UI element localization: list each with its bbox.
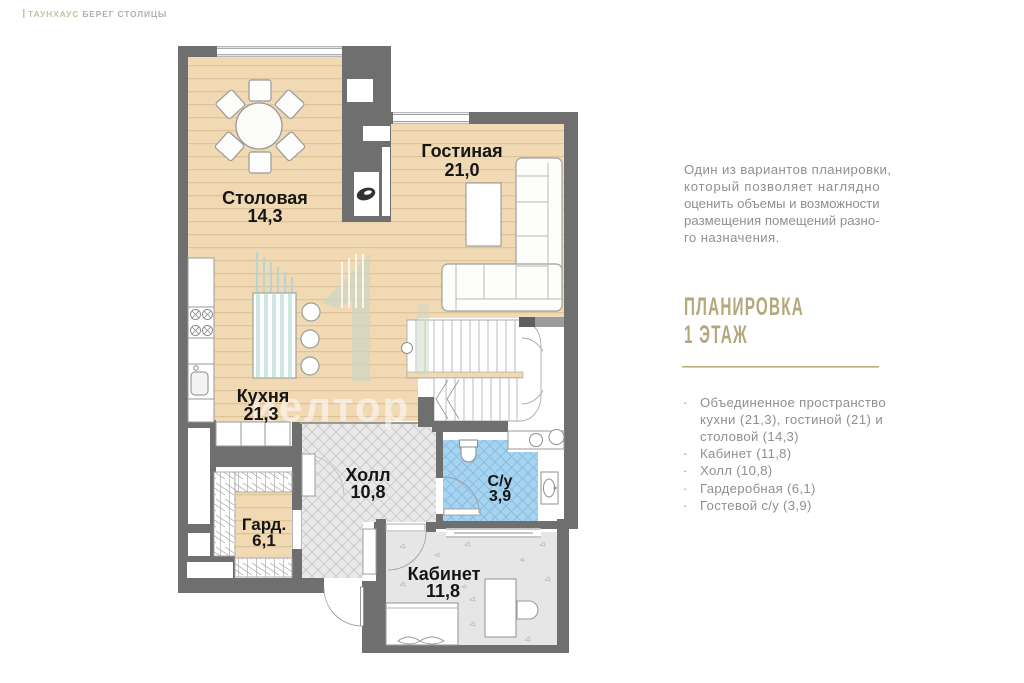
svg-text:столовой (14,3): столовой (14,3): [700, 429, 799, 444]
svg-text:11,8: 11,8: [426, 581, 460, 601]
svg-text:Холл (10,8): Холл (10,8): [700, 463, 773, 478]
svg-text:оценить объемы и возможности: оценить объемы и возможности: [684, 196, 880, 211]
svg-text:1 ЭТАЖ: 1 ЭТАЖ: [684, 321, 748, 349]
svg-text:6,1: 6,1: [252, 531, 276, 550]
svg-text:·: ·: [683, 498, 688, 513]
svg-text:Гостиная: Гостиная: [421, 141, 502, 161]
svg-text:Кабинет (11,8): Кабинет (11,8): [700, 446, 792, 461]
svg-text:Гостевой с/у (3,9): Гостевой с/у (3,9): [700, 498, 812, 513]
svg-text:·: ·: [683, 463, 688, 478]
svg-text:14,3: 14,3: [247, 206, 282, 226]
svg-text:Столовая: Столовая: [222, 188, 308, 208]
svg-text:го назначения.: го назначения.: [684, 230, 780, 245]
svg-text:3,9: 3,9: [489, 488, 511, 505]
svg-text:Один из вариантов планировки,: Один из вариантов планировки,: [684, 162, 891, 177]
svg-text:·: ·: [683, 395, 688, 410]
svg-text:ПЛАНИРОВКА: ПЛАНИРОВКА: [684, 293, 804, 321]
svg-text:Кухня: Кухня: [237, 386, 290, 406]
svg-text:кухни (21,3), гостиной (21) и: кухни (21,3), гостиной (21) и: [700, 412, 883, 427]
svg-text:ТАУНХАУС БЕРЕГ СТОЛИЦЫ: ТАУНХАУС БЕРЕГ СТОЛИЦЫ: [28, 9, 167, 19]
svg-text:·: ·: [683, 446, 688, 461]
svg-text:·: ·: [683, 481, 688, 496]
svg-text:21,0: 21,0: [444, 160, 479, 180]
svg-text:Гардеробная (6,1): Гардеробная (6,1): [700, 481, 816, 496]
svg-text:10,8: 10,8: [350, 482, 385, 502]
svg-text:21,3: 21,3: [243, 404, 278, 424]
svg-text:Объединенное пространство: Объединенное пространство: [700, 395, 886, 410]
svg-text:размещения помещений разно-: размещения помещений разно-: [684, 213, 880, 228]
svg-text:который позволяет наглядно: который позволяет наглядно: [684, 179, 880, 194]
